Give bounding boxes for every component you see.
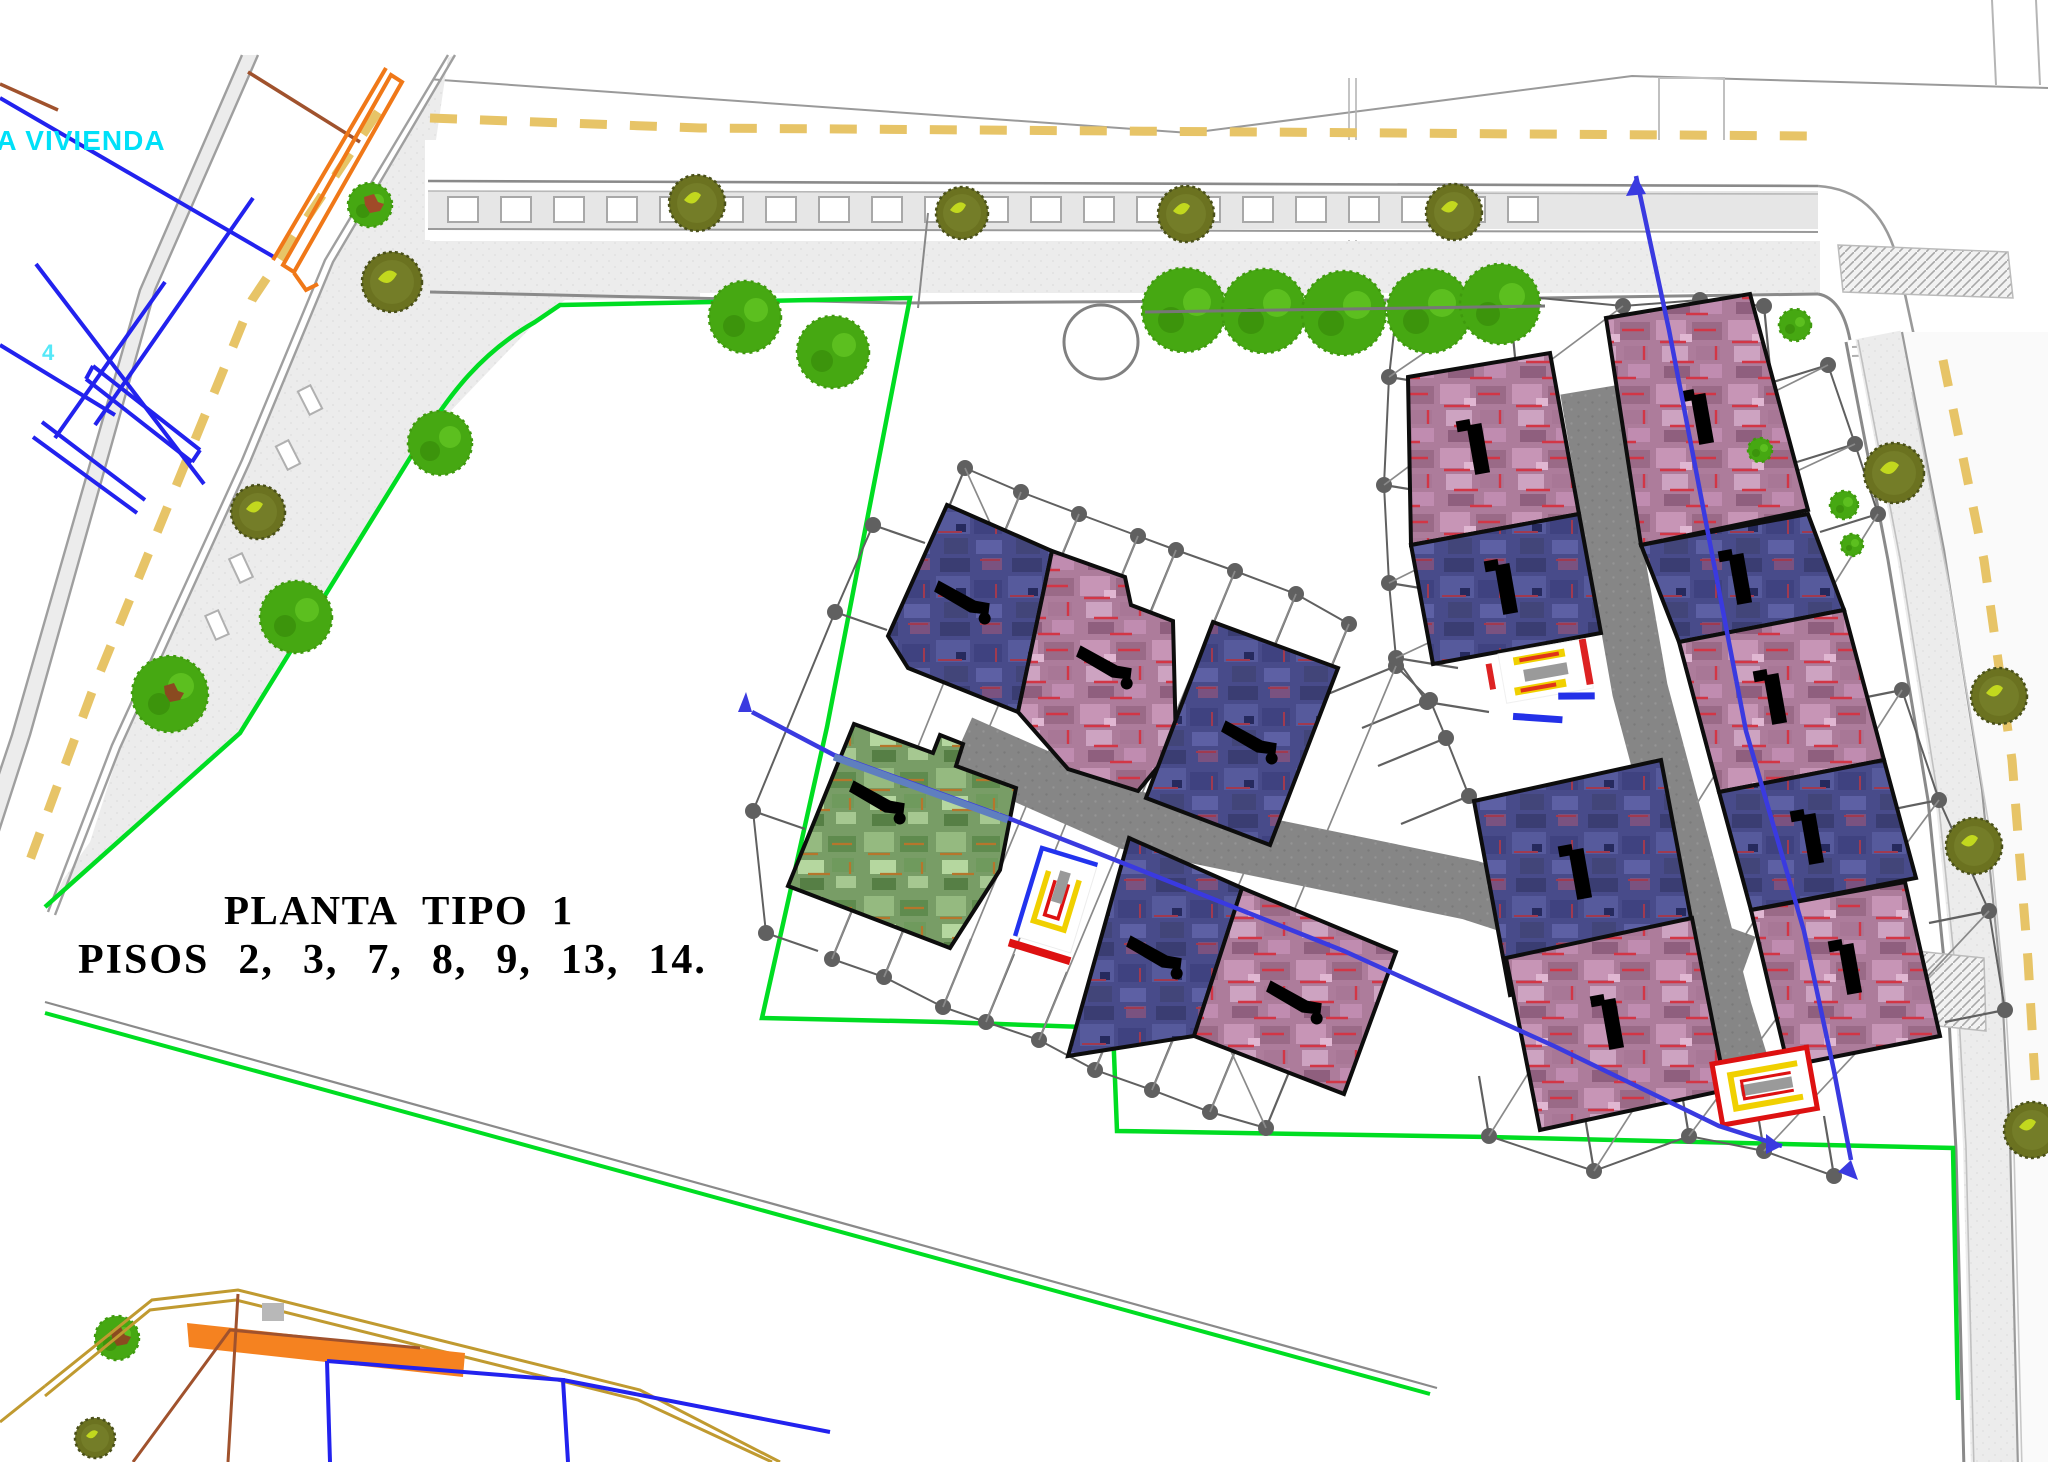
svg-text::A VIVIENDA: :A VIVIENDA (0, 125, 166, 156)
svg-text:PLANTA TIPO 1: PLANTA TIPO 1 (224, 887, 574, 933)
svg-text:PISOS 2, 3, 7, 8, 9, 13,: PISOS 2, 3, 7, 8, 9, 13, 14. (78, 937, 707, 983)
svg-text:4: 4 (42, 340, 55, 365)
